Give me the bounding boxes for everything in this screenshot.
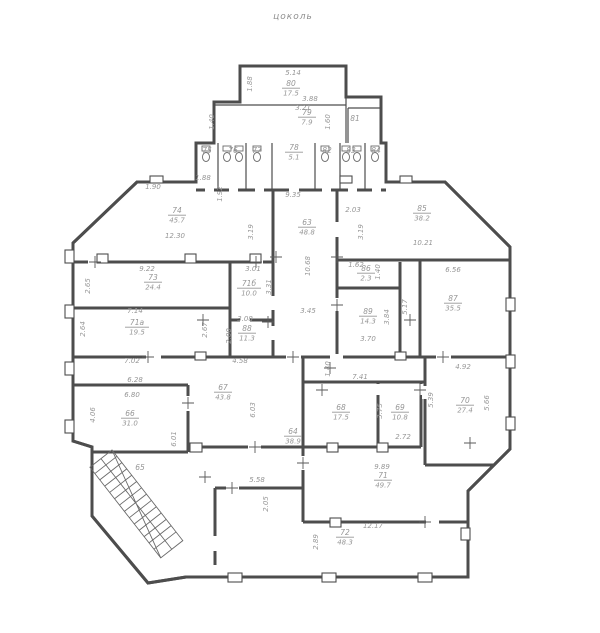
dimension-label: 10.68	[304, 255, 312, 276]
room-label-89: 8914.3	[359, 307, 377, 326]
dimension-label: 12.30	[165, 232, 186, 240]
svg-text:43.8: 43.8	[215, 394, 231, 402]
svg-text:88: 88	[242, 324, 252, 333]
dimension-label: 7.02	[124, 357, 140, 365]
dimension-label: 10.21	[413, 239, 433, 247]
door-tick	[142, 351, 154, 363]
svg-text:63: 63	[302, 218, 312, 227]
door-tick	[464, 437, 476, 449]
svg-text:64: 64	[288, 427, 298, 436]
svg-text:77: 77	[252, 146, 262, 155]
room-label-75: 75	[202, 146, 212, 155]
room-label-71: 7149.7	[374, 471, 392, 490]
svg-text:84: 84	[371, 146, 381, 155]
floor-plan-canvas: 8017.5797.981757677785.18283847445.78538…	[0, 0, 600, 633]
svg-text:38.9: 38.9	[285, 438, 301, 446]
room-label-70: 7027.4	[456, 396, 474, 415]
svg-text:35.5: 35.5	[445, 305, 461, 313]
svg-text:17.5: 17.5	[283, 90, 299, 98]
svg-text:11.3: 11.3	[239, 335, 255, 343]
svg-text:67: 67	[218, 383, 228, 392]
dimension-label: 5.66	[483, 395, 491, 411]
dimension-label: 1.90	[145, 183, 161, 191]
room-label-84: 84	[371, 146, 381, 155]
dimension-label: 4.92	[455, 363, 471, 371]
room-label-65: 65	[135, 463, 145, 472]
svg-text:68: 68	[336, 403, 346, 412]
dimension-label: 1.40	[208, 114, 216, 130]
svg-text:5.1: 5.1	[288, 154, 299, 162]
room-label-68: 6817.5	[332, 403, 350, 422]
svg-text:38.2: 38.2	[414, 215, 430, 223]
dimension-label: 6.01	[170, 431, 178, 447]
dimension-label: 6.03	[249, 402, 257, 418]
svg-text:31.0: 31.0	[122, 420, 138, 428]
svg-text:45.7: 45.7	[169, 217, 185, 225]
dimension-label: 5.14	[285, 69, 301, 77]
room-label-87: 8735.5	[444, 294, 462, 313]
room-label-82: 82	[322, 146, 332, 155]
svg-text:70: 70	[460, 396, 470, 405]
svg-text:2.3: 2.3	[360, 275, 371, 283]
svg-text:80: 80	[286, 79, 296, 88]
svg-text:81: 81	[350, 114, 360, 123]
svg-text:10.8: 10.8	[392, 414, 408, 422]
dimension-label: 1.40	[324, 361, 332, 377]
svg-text:78: 78	[289, 143, 299, 152]
room-label-72: 7248.3	[336, 528, 354, 547]
plan-labels: 8017.5797.981757677785.18283847445.78538…	[79, 69, 491, 550]
dimension-label: 12.17	[363, 522, 384, 530]
room-label-78: 785.1	[285, 143, 303, 162]
room-label-71а: 71а19.5	[125, 318, 149, 337]
svg-text:49.7: 49.7	[375, 482, 391, 490]
door-tick	[226, 482, 238, 494]
svg-text:71: 71	[378, 471, 388, 480]
svg-text:7.9: 7.9	[301, 119, 313, 127]
dimension-label: 2.05	[262, 496, 270, 512]
dimension-label: 1.88	[246, 76, 254, 92]
dimension-label: 3.01	[245, 265, 261, 273]
door-tick	[182, 397, 194, 409]
door-tick	[249, 441, 261, 453]
room-label-71б: 71б10.0	[237, 279, 261, 298]
dimension-label: 3.19	[357, 224, 365, 240]
door-tick	[404, 314, 416, 326]
dimension-label: 4.58	[232, 357, 248, 365]
dimension-label: 6.80	[124, 391, 140, 399]
svg-text:82: 82	[322, 146, 332, 155]
dimension-label: 1.88	[195, 174, 211, 182]
room-label-83: 83	[346, 146, 356, 155]
dimension-label: 2.00	[225, 328, 233, 344]
room-label-69: 6910.8	[391, 403, 409, 422]
dimension-label: 2.03	[345, 206, 361, 214]
dimension-label: 1.60	[324, 114, 332, 130]
svg-text:14.3: 14.3	[360, 318, 376, 326]
dimension-label: 2.72	[395, 433, 411, 441]
dimension-label: 2.65	[84, 278, 92, 294]
door-tick	[287, 351, 299, 363]
dimension-label: 1.92	[216, 186, 224, 202]
dimension-label: 3.31	[265, 279, 273, 295]
room-label-64: 6438.9	[284, 427, 302, 446]
dimension-label: 3.88	[302, 95, 318, 103]
dimension-label: 1.40	[374, 264, 382, 280]
dimension-label: 2.67	[201, 322, 209, 338]
svg-text:71б: 71б	[242, 279, 257, 288]
room-label-88: 8811.3	[238, 324, 256, 343]
dimension-label: 2.89	[312, 534, 320, 550]
dimension-label: 9.35	[285, 191, 301, 199]
room-label-80: 8017.5	[282, 79, 300, 98]
room-label-66: 6631.0	[121, 409, 139, 428]
svg-text:66: 66	[125, 409, 135, 418]
room-label-67: 6743.8	[214, 383, 232, 402]
dimension-label: 6.56	[445, 266, 461, 274]
dimension-label: 5.58	[249, 476, 265, 484]
room-label-85: 8538.2	[413, 204, 431, 223]
room-label-63: 6348.8	[298, 218, 316, 237]
dimension-label: 3.08	[237, 315, 253, 323]
dimension-label: 3.19	[247, 224, 255, 240]
dimension-label: 2.64	[79, 321, 87, 337]
svg-text:48.3: 48.3	[337, 539, 353, 547]
door-tick	[316, 384, 328, 396]
dimension-label: 4.06	[89, 407, 97, 423]
svg-text:65: 65	[135, 463, 145, 472]
door-tick	[419, 516, 431, 528]
svg-text:85: 85	[417, 204, 427, 213]
dimension-label: 3.70	[360, 335, 376, 343]
svg-text:75: 75	[202, 146, 212, 155]
room-label-74: 7445.7	[168, 206, 186, 225]
dimension-label: 1.62	[348, 261, 364, 269]
floor-plan-page: цоколь	[0, 0, 600, 633]
room-label-73: 7324.4	[144, 273, 162, 292]
door-tick	[199, 471, 211, 483]
room-label-81: 81	[350, 114, 360, 123]
svg-text:19.5: 19.5	[129, 329, 145, 337]
svg-text:87: 87	[448, 294, 458, 303]
dimension-label: 9.89	[374, 463, 390, 471]
dimension-label: 9.22	[139, 265, 155, 273]
dimension-label: 6.28	[127, 376, 143, 384]
door-tick	[437, 351, 449, 363]
svg-text:27.4: 27.4	[457, 407, 473, 415]
svg-text:74: 74	[172, 206, 182, 215]
room-label-77: 77	[252, 146, 262, 155]
dimension-label: 5.39	[427, 392, 435, 408]
svg-text:17.5: 17.5	[333, 414, 349, 422]
dimension-label: 3.84	[383, 309, 391, 325]
svg-text:73: 73	[148, 273, 158, 282]
dimension-label: 7.41	[352, 373, 368, 381]
door-tick	[297, 457, 309, 469]
door-tick	[331, 299, 343, 311]
dimension-label: 3.21	[295, 104, 311, 112]
svg-text:71а: 71а	[130, 318, 145, 327]
svg-text:24.4: 24.4	[145, 284, 161, 292]
svg-text:76: 76	[228, 146, 238, 155]
room-label-76: 76	[228, 146, 238, 155]
svg-text:89: 89	[363, 307, 373, 316]
dimension-label: 7.14	[127, 307, 143, 315]
svg-text:48.8: 48.8	[299, 229, 315, 237]
svg-text:83: 83	[346, 146, 356, 155]
svg-text:72: 72	[340, 528, 350, 537]
dimension-label: 5.17	[401, 299, 409, 315]
svg-text:69: 69	[395, 403, 405, 412]
svg-text:10.0: 10.0	[241, 290, 257, 298]
dimension-label: 3.45	[300, 307, 316, 315]
dimension-label: 3.75	[376, 403, 384, 419]
